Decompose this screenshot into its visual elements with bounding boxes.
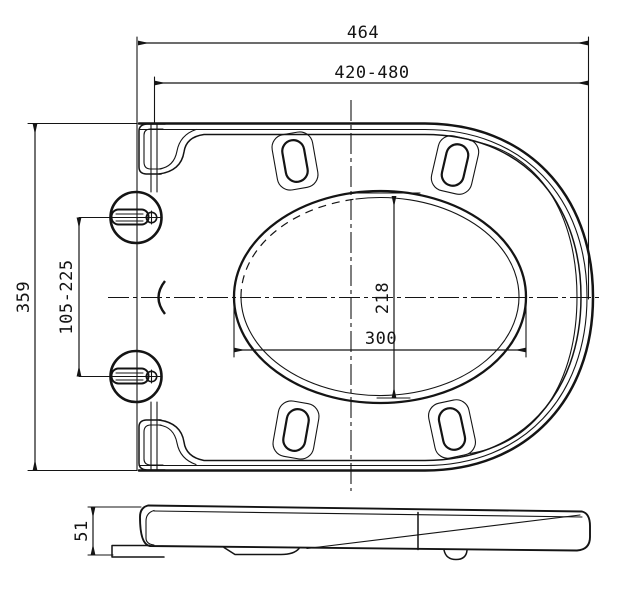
- profile-back-edge-line: [307, 515, 580, 549]
- slot-hole: [281, 138, 310, 183]
- notch-hook-line: [159, 425, 196, 465]
- slot-boss: [426, 397, 478, 460]
- bolt-slot-top-left: [270, 130, 320, 192]
- side-profile: [112, 506, 590, 560]
- drawing-sheet: 464 420-480 359 105-225 218: [0, 0, 643, 600]
- hinge-foot-plate: [112, 546, 164, 558]
- top-left-notch: [139, 124, 196, 192]
- dim-label-seat-height: 51: [72, 520, 92, 541]
- notch-bracket-inner: [144, 425, 163, 465]
- bottom-left-notch: [139, 402, 196, 470]
- slot-hole: [440, 142, 471, 188]
- notch-hook-line: [159, 130, 196, 170]
- bolt-slot-bottom-left: [271, 399, 321, 461]
- dim-seat-height: 51: [72, 507, 141, 555]
- slot-hole: [437, 406, 467, 452]
- hinge-top: [79, 192, 162, 243]
- top-view: 464 420-480 359 105-225 218: [14, 23, 599, 491]
- notch-stub-lines: [151, 124, 157, 192]
- slot-hole: [282, 407, 311, 452]
- profile-left-inner-contour: [146, 511, 154, 546]
- opening-inner-edge-hidden: [241, 199, 356, 297]
- dim-opening-minor: 218: [349, 193, 420, 398]
- notch-bracket-outer: [139, 420, 165, 470]
- technical-drawing: 464 420-480 359 105-225 218: [0, 0, 643, 600]
- profile-top-inner-line: [154, 511, 582, 517]
- dim-label-fit-length-range: 420-480: [334, 63, 409, 83]
- dim-fit-length-range: 420-480: [155, 63, 589, 123]
- dim-label-opening-major: 300: [365, 329, 397, 349]
- dim-label-hinge-hole-range: 105-225: [57, 259, 77, 334]
- dim-label-overall-length: 464: [347, 23, 379, 43]
- notch-bracket-inner: [144, 129, 163, 169]
- side-view: 51: [72, 506, 590, 560]
- dim-hinge-hole-range: 105-225: [57, 218, 79, 377]
- notch-stub-lines: [151, 402, 157, 470]
- slot-boss: [429, 133, 482, 197]
- extension-lines: [88, 507, 141, 555]
- hinge-bottom: [79, 351, 162, 402]
- bolt-slot-top-right: [429, 133, 482, 197]
- bumper-front: [224, 548, 299, 555]
- dim-label-overall-width: 359: [14, 281, 34, 313]
- notch-bracket-outer: [139, 124, 165, 174]
- bolt-slot-bottom-right: [426, 397, 478, 460]
- bumper-rear: [444, 550, 467, 560]
- dim-label-opening-minor: 218: [373, 282, 393, 314]
